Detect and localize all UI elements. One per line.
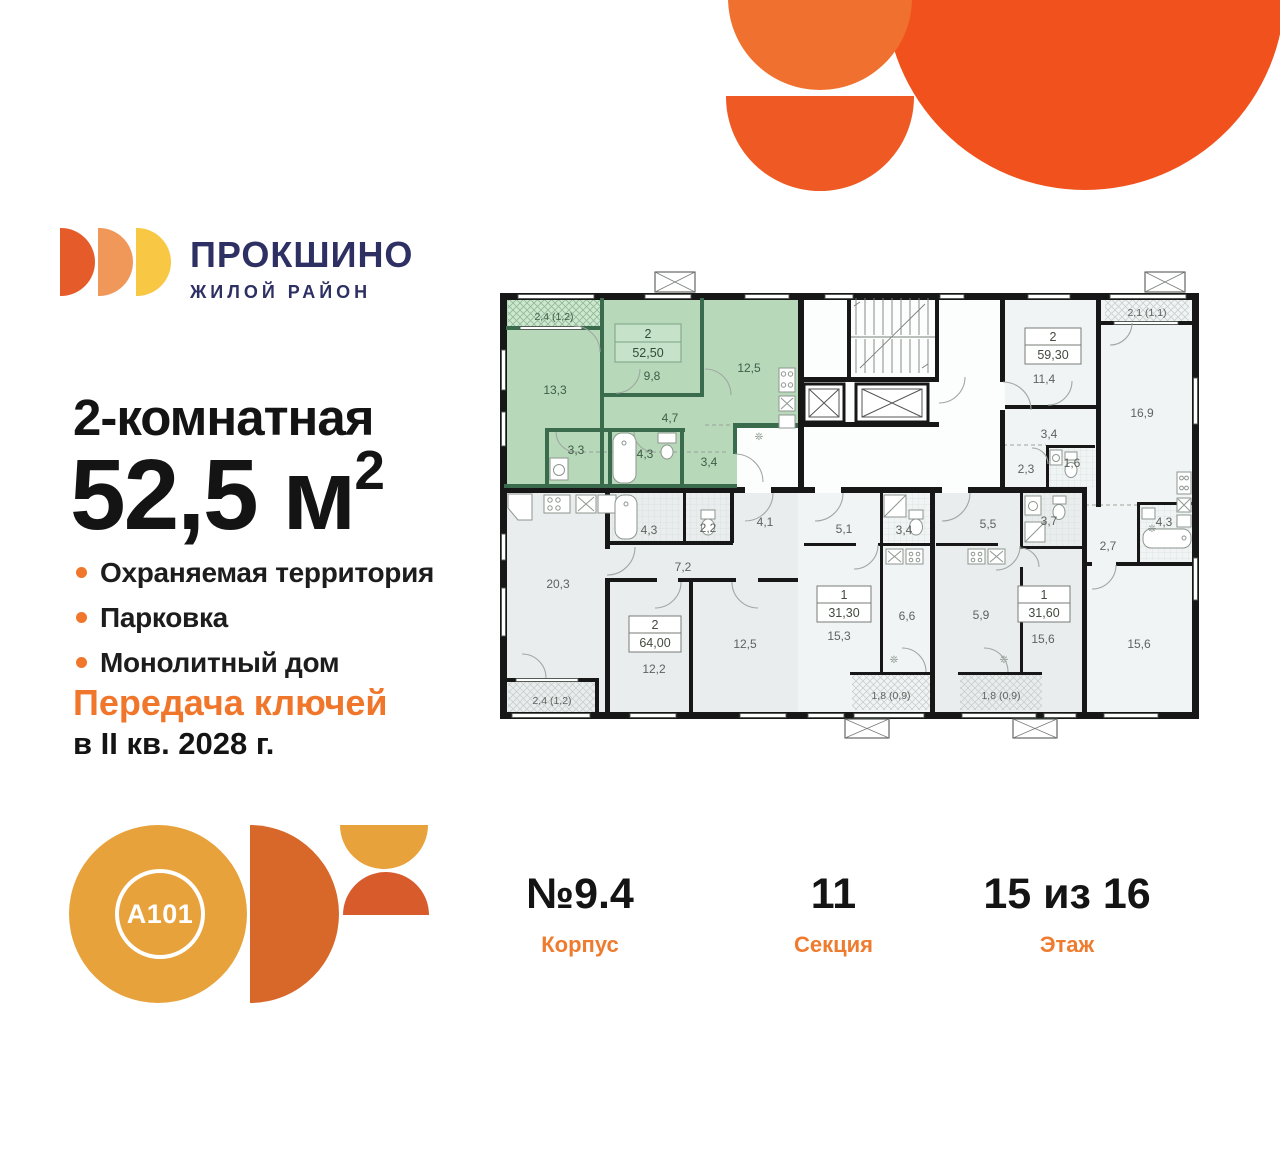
offer-area-value: 52,5 м [70, 439, 354, 551]
room-label: 4,3 [1156, 515, 1173, 529]
brand-petal-icon [60, 228, 95, 296]
bullet-dot-icon [76, 612, 87, 623]
room-label: 15,3 [827, 629, 851, 643]
unit-area: 59,30 [1037, 348, 1068, 362]
decor-semicircle-top [728, 0, 912, 90]
room-label: 2,4 (1,2) [532, 695, 571, 707]
room-label: 12,5 [733, 637, 757, 651]
bullet-dot-icon [76, 567, 87, 578]
room-label: 2,2 [700, 521, 717, 535]
bullet-dot-icon [76, 657, 87, 668]
room-label: 3,7 [1041, 514, 1058, 528]
meta-section: 11 Секция [741, 870, 926, 958]
room-label: 4,3 [641, 523, 658, 537]
unit-rooms: 1 [841, 588, 848, 602]
room-label: 7,2 [675, 560, 692, 574]
room-label: 11,4 [1033, 372, 1056, 386]
floor-plan: ❊ ❊ ❊ ❊ [492, 270, 1207, 740]
developer-dome-icon [343, 872, 429, 915]
room-label: 1,8 (0,9) [981, 690, 1020, 702]
fridge-icon: ❊ [755, 432, 763, 443]
room-label: 5,9 [973, 608, 990, 622]
room-label: 20,3 [546, 577, 570, 591]
room-label: 4,3 [637, 447, 654, 461]
brand-petal-icon [98, 228, 133, 296]
developer-logo: A101 [69, 825, 434, 1017]
room-label: 2,7 [1100, 539, 1117, 553]
radiator-icon: ❊ [890, 655, 898, 666]
room-label: 4,1 [757, 515, 774, 529]
meta-building: №9.4 Корпус [470, 870, 690, 958]
feature-item: Монолитный дом [76, 640, 434, 685]
building-number: №9.4 [470, 870, 690, 919]
keys-handover-line1: Передача ключей [73, 682, 388, 724]
room-label: 5,1 [836, 522, 853, 536]
feature-item: Парковка [76, 595, 434, 640]
brand-name: ПРОКШИНО [190, 234, 413, 276]
developer-logo-text: A101 [115, 869, 205, 959]
feature-label: Парковка [100, 602, 228, 634]
unit-area: 31,60 [1028, 606, 1059, 620]
decor-semicircle-bottom [726, 96, 914, 191]
developer-bowl-icon [340, 825, 428, 869]
room-label: 1,8 (0,9) [871, 690, 910, 702]
room-label: 3,4 [1041, 427, 1058, 441]
brand-logo [60, 228, 174, 296]
developer-halfdisc-icon [250, 825, 339, 1003]
decor-circle-large [885, 0, 1280, 190]
room-label: 15,6 [1031, 632, 1055, 646]
room-label: 6,6 [899, 609, 916, 623]
feature-item: Охраняемая территория [76, 550, 434, 595]
brand-petal-icon [136, 228, 171, 296]
room-label: 3,4 [701, 455, 718, 469]
meta-floor: 15 из 16 Этаж [952, 870, 1182, 958]
room-label: 1,6 [1064, 456, 1081, 470]
unit-rooms: 1 [1041, 588, 1048, 602]
brand-tagline: ЖИЛОЙ РАЙОН [190, 282, 413, 303]
offer-area-superscript: 2 [354, 439, 385, 501]
building-label: Корпус [470, 932, 690, 958]
unit-rooms: 2 [1050, 330, 1057, 344]
unit-area: 52,50 [632, 346, 663, 360]
offer-area: 52,5 м2 [70, 438, 385, 553]
room-label: 3,4 [896, 523, 913, 537]
feature-label: Монолитный дом [100, 647, 339, 679]
room-label: 3,3 [568, 443, 585, 457]
brand-text: ПРОКШИНО ЖИЛОЙ РАЙОН [190, 234, 413, 303]
feature-list: Охраняемая территория Парковка Монолитны… [76, 550, 434, 685]
unit-area: 64,00 [639, 636, 670, 650]
room-label: 2,3 [1018, 462, 1035, 476]
floor-label: Этаж [952, 932, 1182, 958]
room-label: 16,9 [1130, 406, 1154, 420]
elevator-shafts [804, 384, 928, 422]
keys-handover-line2: в II кв. 2028 г. [73, 726, 274, 762]
section-label: Секция [741, 932, 926, 958]
feature-label: Охраняемая территория [100, 557, 434, 589]
room-label: 15,6 [1127, 637, 1151, 651]
room-label: 12,2 [642, 662, 666, 676]
section-number: 11 [741, 870, 926, 919]
unit-area: 31,30 [828, 606, 859, 620]
unit-rooms: 2 [652, 618, 659, 632]
room-label: 12,5 [737, 361, 761, 375]
room-label: 5,5 [980, 517, 997, 531]
room-label: 2,1 (1,1) [1127, 307, 1166, 319]
room-label: 4,7 [662, 411, 679, 425]
room-label: 13,3 [543, 383, 567, 397]
room-label: 2,4 (1,2) [534, 311, 573, 323]
unit-rooms: 2 [645, 327, 652, 341]
room-label: 9,8 [644, 369, 661, 383]
floor-number: 15 из 16 [952, 870, 1182, 919]
